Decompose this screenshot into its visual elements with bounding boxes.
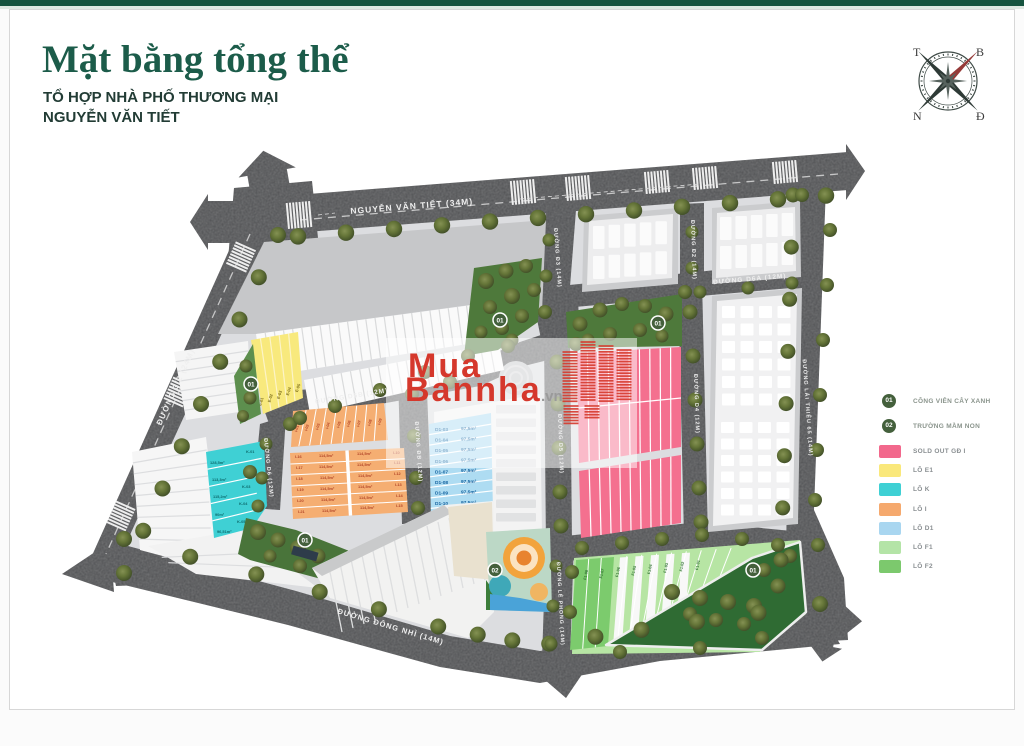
svg-text:D1-08: D1-08 [435, 480, 448, 486]
svg-text:.vn: .vn [541, 388, 563, 405]
svg-text:114,5m²: 114,5m² [357, 451, 372, 456]
svg-text:I-14: I-14 [396, 493, 404, 498]
svg-text:115,2m²: 115,2m² [213, 494, 228, 499]
svg-text:114,5m²: 114,5m² [357, 462, 372, 467]
svg-text:114,5m²: 114,5m² [358, 484, 373, 489]
svg-text:K-03: K-03 [242, 484, 251, 489]
svg-text:114,5m²: 114,5m² [360, 505, 375, 510]
svg-text:114,5m²: 114,5m² [359, 495, 374, 500]
svg-text:90m²: 90m² [215, 512, 225, 517]
svg-text:Bannha: Bannha [405, 371, 542, 409]
svg-text:01: 01 [654, 320, 662, 327]
svg-text:97,5m²: 97,5m² [461, 479, 477, 485]
svg-text:I-15: I-15 [396, 503, 404, 508]
svg-text:I-13: I-13 [395, 482, 403, 487]
svg-text:I-19: I-19 [297, 487, 305, 492]
svg-text:I-16: I-16 [295, 454, 303, 459]
svg-text:02: 02 [491, 567, 499, 574]
svg-text:128,5m²: 128,5m² [210, 460, 225, 465]
svg-text:I-12: I-12 [394, 471, 402, 476]
svg-text:D1-09: D1-09 [435, 491, 448, 497]
svg-text:01: 01 [247, 381, 255, 388]
svg-text:114,5m²: 114,5m² [358, 473, 373, 478]
svg-text:114,5m²: 114,5m² [320, 475, 335, 480]
svg-text:I-20: I-20 [297, 498, 304, 503]
svg-text:I-21: I-21 [298, 509, 306, 514]
svg-text:114,5m²: 114,5m² [321, 497, 336, 502]
svg-text:96,51m²: 96,51m² [217, 529, 232, 534]
svg-text:114,5m²: 114,5m² [319, 464, 334, 469]
svg-text:01: 01 [301, 537, 309, 544]
svg-text:114,5m²: 114,5m² [319, 453, 334, 458]
svg-text:D1-07: D1-07 [435, 469, 448, 475]
svg-text:I-18: I-18 [296, 476, 304, 481]
svg-text:97,5m²: 97,5m² [461, 468, 477, 474]
svg-text:I-17: I-17 [296, 465, 303, 470]
svg-text:01: 01 [749, 567, 757, 574]
svg-text:K-01: K-01 [246, 449, 255, 454]
svg-text:K-04: K-04 [239, 501, 248, 506]
svg-text:01: 01 [496, 317, 504, 324]
svg-text:114,5m²: 114,5m² [322, 508, 337, 513]
svg-text:114,5m²: 114,5m² [320, 486, 335, 491]
svg-text:113,3m²: 113,3m² [212, 477, 227, 482]
svg-text:97,5m²: 97,5m² [461, 489, 477, 495]
